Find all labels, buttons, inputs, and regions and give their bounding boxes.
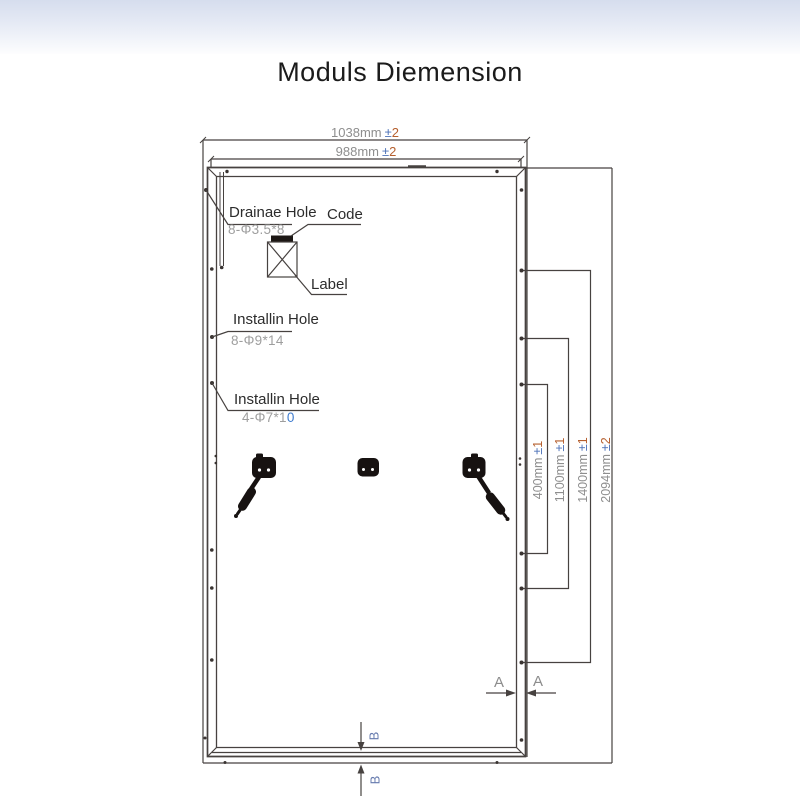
cable-connector-left-icon — [234, 477, 259, 518]
dim-1038-label: 1038mm±2 — [331, 125, 399, 140]
code-label: Code — [327, 206, 363, 223]
dim-988-label: 988mm±2 — [336, 144, 397, 159]
section-a-right-label: A — [533, 673, 543, 690]
install-hole-upper-spec: 8-Φ9*14 — [231, 333, 284, 348]
section-b-top-label: B — [367, 732, 382, 741]
dimension-diagram — [0, 0, 800, 800]
section-arrow-b-bottom — [358, 765, 365, 797]
dim-1100-label: 1100mm±1 — [553, 438, 567, 503]
section-arrow-a-right — [526, 690, 556, 697]
drainage-slot — [220, 172, 224, 269]
dim-1400-label: 1400mm±1 — [576, 437, 590, 502]
dim-2094-label: 2094mm±2 — [599, 437, 613, 502]
junction-box-left-icon — [252, 454, 276, 479]
install-hole-upper-label: Installin Hole — [233, 311, 319, 328]
install-hole-lower-spec: 4-Φ7*10 — [242, 410, 295, 425]
drainage-hole-label: Drainae Hole — [229, 204, 317, 221]
drainage-hole-spec: 8-Φ3.5*8 — [228, 222, 285, 237]
section-arrow-b-top — [358, 722, 365, 751]
section-b-bottom-label: B — [367, 776, 382, 785]
junction-box-center-icon — [358, 458, 380, 477]
install-hole-lower-label: Installin Hole — [234, 391, 320, 408]
module-dimension-drawing: Moduls Diemension — [0, 0, 800, 800]
cable-connector-right-icon — [478, 476, 510, 521]
section-a-left-label: A — [494, 674, 504, 691]
junction-box-right-icon — [463, 454, 486, 479]
dim-400-label: 400mm±1 — [531, 441, 545, 500]
label-label: Label — [311, 276, 348, 293]
